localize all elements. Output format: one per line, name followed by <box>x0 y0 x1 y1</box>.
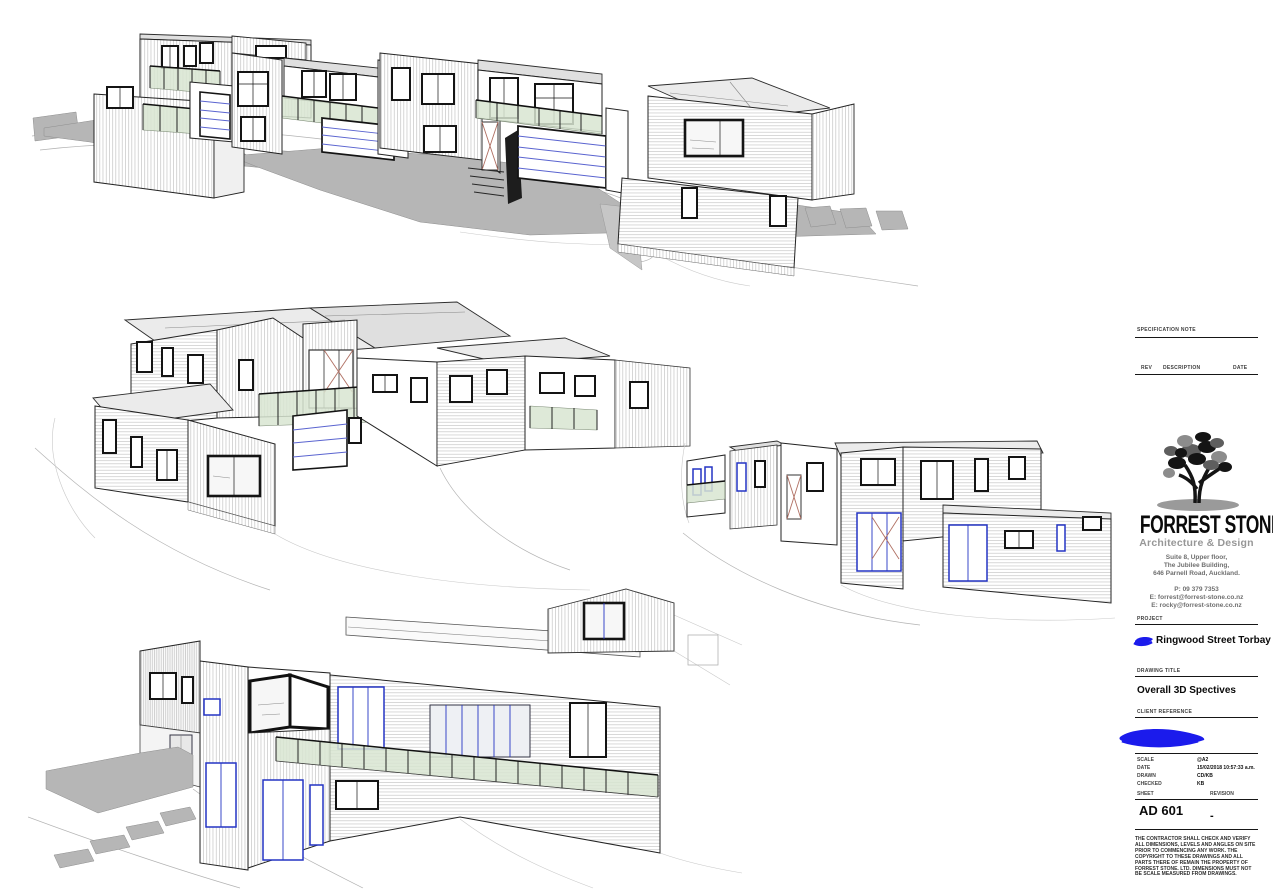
central-volume <box>200 661 248 870</box>
perspective-view-top <box>30 8 920 290</box>
scale-label: SCALE <box>1137 757 1154 763</box>
rev-column-label: REV <box>1141 365 1152 371</box>
drawn-label: DRAWN <box>1137 773 1156 779</box>
date-value: 15/02/2018 10:57:33 a.m. <box>1197 765 1255 771</box>
disclaimer-note: THE CONTRACTOR SHALL CHECK AND VERIFY AL… <box>1135 837 1259 878</box>
revision-label: REVISION <box>1210 791 1234 797</box>
project-marker-scribble <box>1133 634 1155 647</box>
scale-value: @A2 <box>1197 757 1208 763</box>
specification-note-label: SPECIFICATION NOTE <box>1137 327 1196 333</box>
far-right-units <box>437 338 690 466</box>
drawing-title-label: DRAWING TITLE <box>1137 668 1180 674</box>
entry-door-blue <box>206 763 236 827</box>
garage-entry-1 <box>190 82 234 142</box>
sheet-number: AD 601 <box>1139 803 1183 818</box>
double-door-blue <box>263 780 323 860</box>
drawing-title-value: Overall 3D Spectives <box>1137 685 1236 696</box>
firm-address-line: 646 Parnell Road, Auckland. <box>1135 570 1258 578</box>
checked-value: KB <box>1197 781 1204 787</box>
firm-email-2: E: rocky@forrest-stone.co.nz <box>1135 602 1258 610</box>
rule <box>1135 624 1258 625</box>
sheet-label: SHEET <box>1137 791 1154 797</box>
client-reference-label: CLIENT REFERENCE <box>1137 709 1192 715</box>
rule <box>1135 374 1258 375</box>
firm-phone: P: 09 379 7353 <box>1135 586 1258 594</box>
description-column-label: DESCRIPTION <box>1163 365 1200 371</box>
project-label: PROJECT <box>1137 616 1163 622</box>
rule <box>1135 799 1258 800</box>
right-wing <box>943 505 1111 603</box>
upper-sliders-blue <box>338 687 384 749</box>
checked-label: CHECKED <box>1137 781 1162 787</box>
drawing-sheet: SPECIFICATION NOTE REV DESCRIPTION DATE … <box>0 0 1273 892</box>
lower-slider-redx <box>857 513 901 571</box>
date-label: DATE <box>1137 765 1150 771</box>
client-reference-scribble <box>1118 725 1210 749</box>
firm-address-line: Suite 8, Upper floor, <box>1135 554 1258 562</box>
tree-logo <box>1155 425 1240 513</box>
rule <box>1135 337 1258 338</box>
wing-slider <box>949 525 987 581</box>
rule <box>1135 676 1258 677</box>
background-buildings <box>346 589 718 665</box>
firm-tagline: Architecture & Design <box>1135 537 1258 549</box>
perspective-view-bottom <box>28 575 743 890</box>
title-block: SPECIFICATION NOTE REV DESCRIPTION DATE … <box>1130 0 1273 892</box>
rule <box>1135 829 1258 830</box>
detached-house <box>618 78 854 276</box>
garage-court <box>293 410 347 470</box>
receding-units <box>687 441 837 545</box>
drawn-value: CD/KB <box>1197 773 1213 779</box>
rule <box>1135 753 1258 754</box>
entry-door-redx <box>482 122 498 170</box>
revision-value: - <box>1210 810 1214 822</box>
perspective-view-middle-left <box>25 298 725 593</box>
date-column-label: DATE <box>1233 365 1247 371</box>
firm-address-line: The Jubilee Building, <box>1135 562 1258 570</box>
garage-door-3 <box>518 126 606 188</box>
rule <box>1135 717 1258 718</box>
project-name: Ringwood Street Torbay <box>1156 635 1271 646</box>
right-unit <box>349 358 437 466</box>
corner-window-volume <box>248 667 330 868</box>
firm-email-1: E: forrest@forrest-stone.co.nz <box>1135 594 1258 602</box>
